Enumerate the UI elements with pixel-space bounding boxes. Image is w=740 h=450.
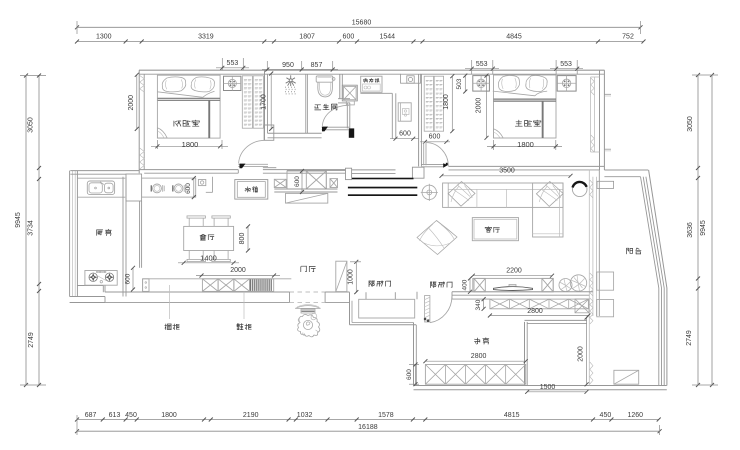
svg-text:1500: 1500: [540, 384, 556, 391]
svg-text:3050: 3050: [687, 116, 694, 132]
svg-text:2000: 2000: [128, 95, 135, 111]
svg-text:9945: 9945: [15, 212, 22, 228]
svg-text:600: 600: [185, 183, 192, 194]
svg-text:600: 600: [343, 34, 355, 41]
svg-text:4845: 4845: [506, 34, 522, 41]
svg-text:1578: 1578: [378, 412, 394, 419]
svg-text:800: 800: [239, 233, 246, 245]
svg-text:2800: 2800: [471, 353, 487, 360]
svg-text:15680: 15680: [352, 19, 372, 26]
svg-text:450: 450: [125, 412, 137, 419]
svg-text:1800: 1800: [443, 94, 450, 110]
svg-text:553: 553: [476, 61, 488, 68]
svg-text:1000: 1000: [347, 269, 354, 285]
svg-text:3636: 3636: [687, 222, 694, 238]
svg-text:553: 553: [560, 61, 572, 68]
svg-text:400: 400: [461, 279, 468, 290]
svg-text:1300: 1300: [96, 34, 112, 41]
svg-text:503: 503: [456, 78, 463, 89]
svg-text:1032: 1032: [297, 412, 313, 419]
svg-text:3050: 3050: [28, 117, 35, 133]
svg-text:4815: 4815: [504, 412, 520, 419]
svg-text:613: 613: [109, 412, 121, 419]
svg-text:553: 553: [227, 60, 239, 67]
svg-text:3500: 3500: [499, 168, 515, 175]
svg-text:1807: 1807: [299, 34, 315, 41]
svg-text:857: 857: [311, 62, 323, 69]
svg-text:450: 450: [600, 412, 612, 419]
svg-text:600: 600: [124, 273, 131, 284]
svg-text:2800: 2800: [527, 308, 543, 315]
svg-text:752: 752: [622, 34, 634, 41]
svg-text:2000: 2000: [230, 267, 246, 274]
svg-text:9945: 9945: [700, 220, 707, 236]
svg-text:2000: 2000: [476, 98, 483, 114]
svg-text:2749: 2749: [28, 332, 35, 348]
svg-text:600: 600: [429, 133, 441, 140]
svg-text:3319: 3319: [198, 34, 214, 41]
svg-text:1544: 1544: [380, 34, 396, 41]
svg-text:600: 600: [399, 130, 411, 137]
svg-text:1260: 1260: [628, 412, 644, 419]
svg-text:16188: 16188: [358, 424, 378, 431]
svg-text:1800: 1800: [182, 140, 199, 149]
svg-text:1700: 1700: [261, 94, 268, 110]
svg-text:2000: 2000: [577, 346, 584, 362]
svg-text:2749: 2749: [686, 330, 693, 346]
svg-text:950: 950: [282, 62, 294, 69]
svg-text:1800: 1800: [161, 412, 177, 419]
svg-text:3734: 3734: [28, 220, 35, 236]
svg-text:1400: 1400: [200, 254, 217, 263]
svg-text:687: 687: [85, 412, 97, 419]
svg-text:2200: 2200: [506, 267, 522, 274]
svg-text:1800: 1800: [517, 140, 534, 149]
svg-text:340: 340: [475, 299, 482, 310]
svg-text:600: 600: [294, 176, 301, 187]
svg-text:600: 600: [406, 369, 413, 380]
svg-text:2190: 2190: [243, 412, 259, 419]
